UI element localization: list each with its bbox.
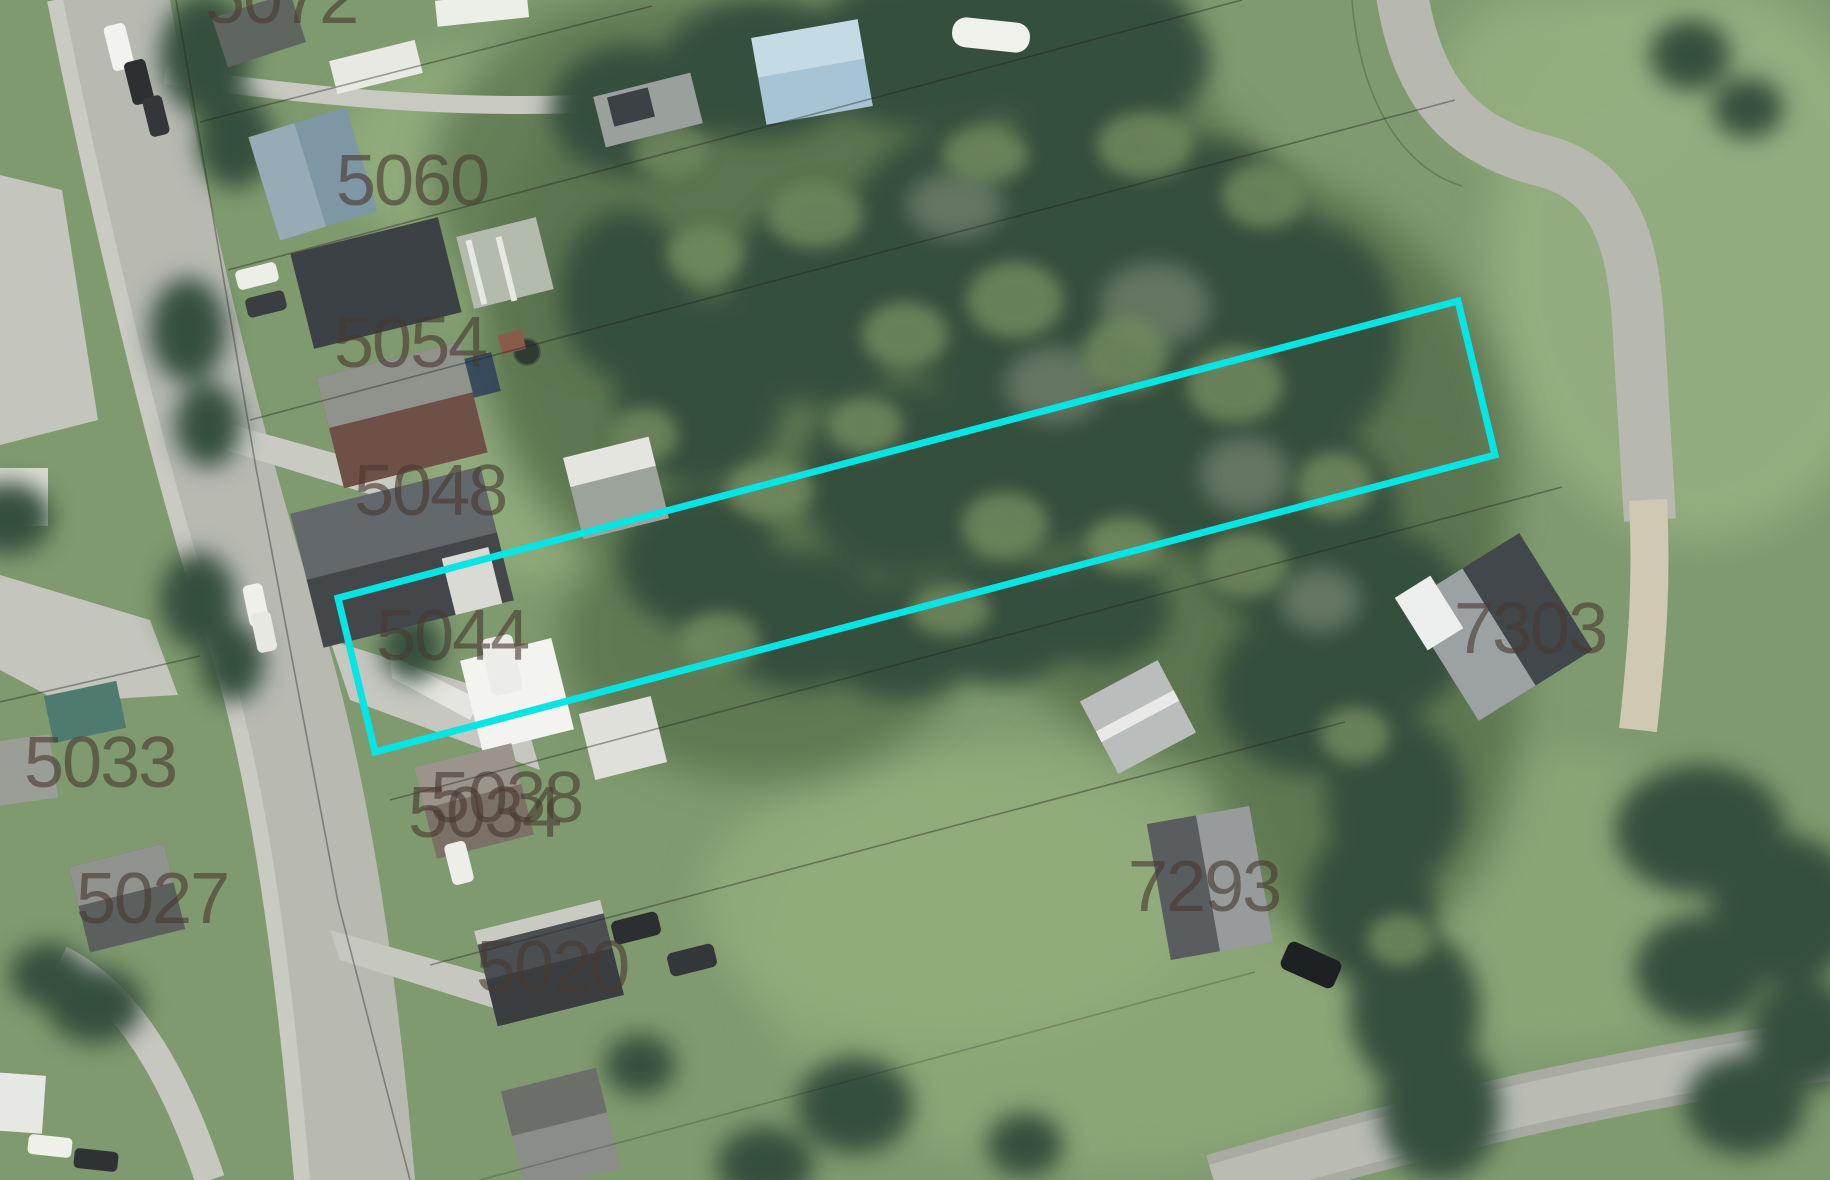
aerial-imagery: [0, 0, 1830, 1180]
dirt-track-right: [1638, 500, 1650, 730]
house-5033: [0, 734, 58, 806]
trailer-bottomleft: [0, 1072, 46, 1133]
aerial-map-viewport[interactable]: 5072506050545048504450385033503450275020…: [0, 0, 1830, 1180]
